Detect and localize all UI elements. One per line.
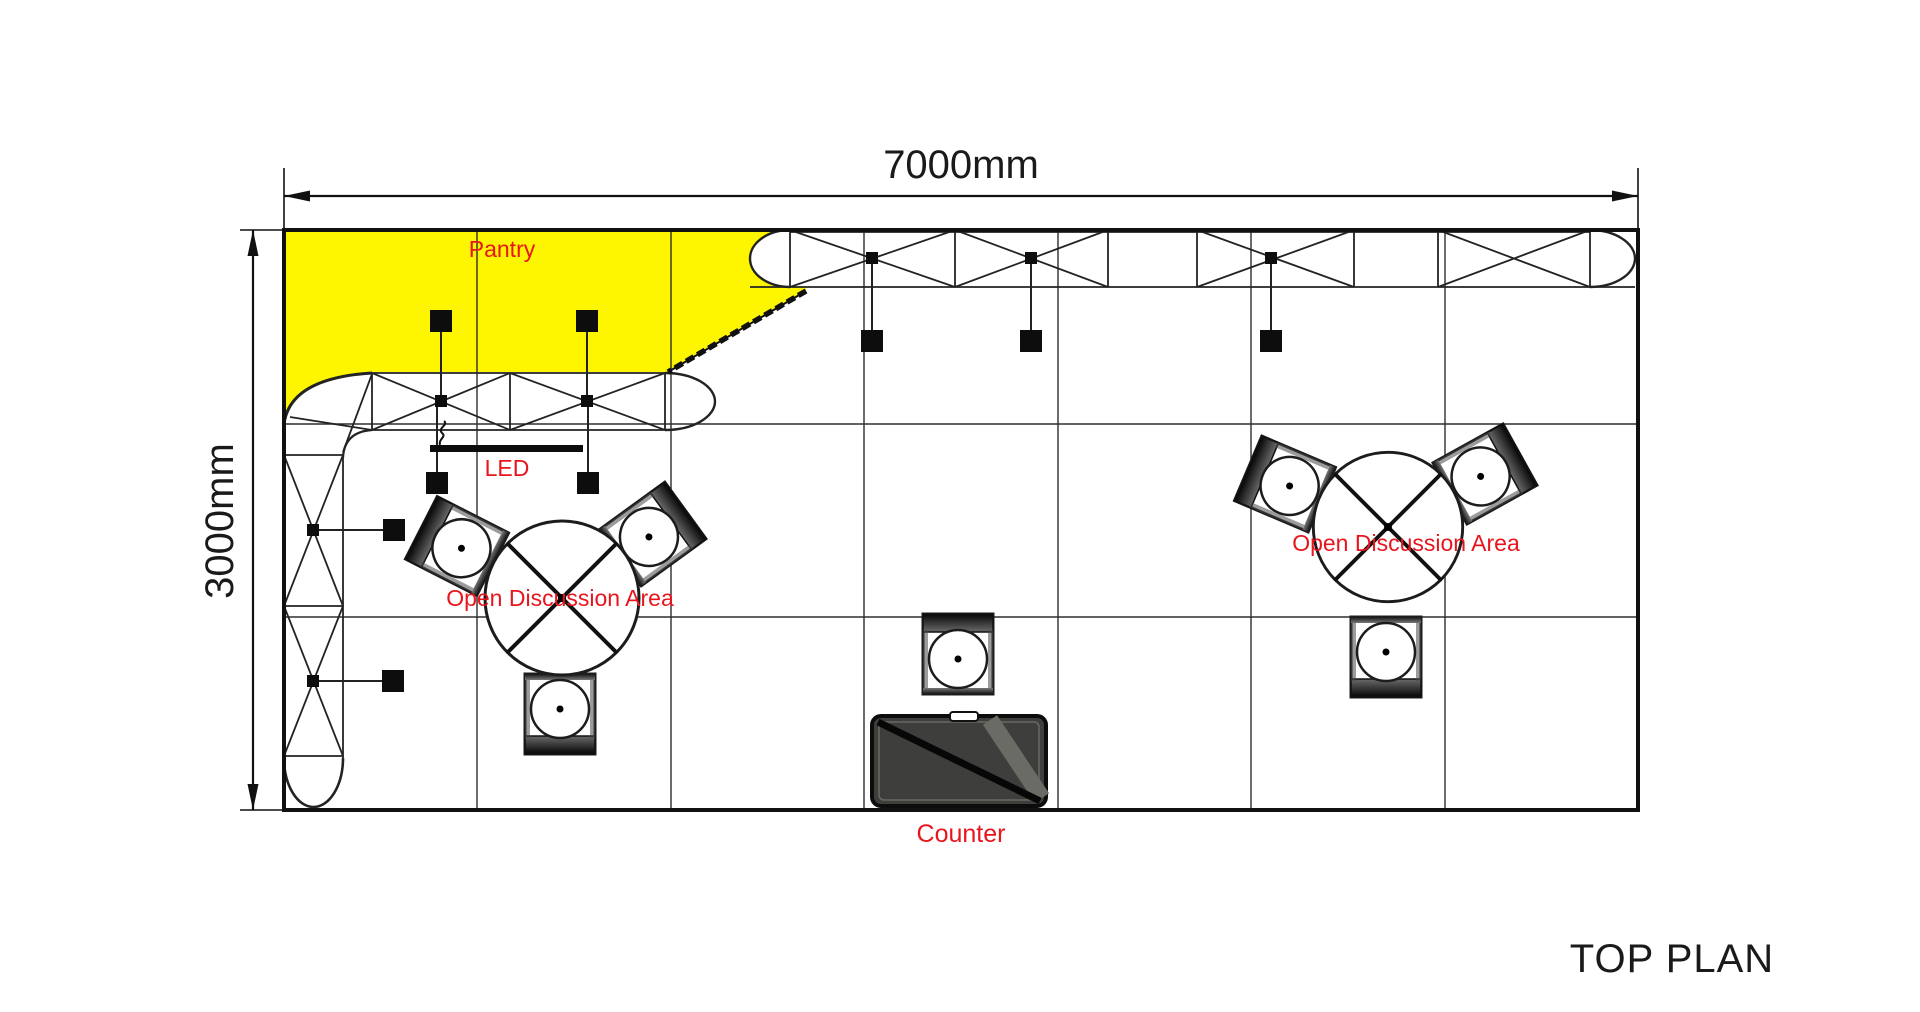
discussion-table: [1313, 452, 1462, 601]
width-dimension-label: 7000mm: [883, 143, 1039, 187]
counter-label: Counter: [917, 820, 1006, 848]
top-plan-drawing: 7000mm 3000mm Pantry LED Open Discussion…: [0, 0, 1920, 1012]
led-label: LED: [485, 455, 530, 481]
pantry-label: Pantry: [469, 236, 536, 262]
spotlight-icon: [426, 472, 448, 494]
top-plan-page: 7000mm 3000mm Pantry LED Open Discussion…: [0, 0, 1920, 1012]
truss-node: [1265, 252, 1277, 264]
counter-chair: [923, 614, 993, 694]
spotlight-icon: [861, 330, 883, 352]
height-dimension-label: 3000mm: [198, 443, 242, 599]
truss-node: [307, 524, 319, 536]
chair: [1351, 617, 1421, 697]
chair: [525, 674, 595, 754]
truss-node: [1025, 252, 1037, 264]
spotlight-icon: [1260, 330, 1282, 352]
spotlight-icon: [577, 472, 599, 494]
spotlight-icon: [383, 519, 405, 541]
spotlight-icon: [1020, 330, 1042, 352]
open-discussion-area-right-label: Open Discussion Area: [1292, 530, 1520, 556]
truss-node: [581, 395, 593, 407]
truss-node: [866, 252, 878, 264]
spotlight-icon: [576, 310, 598, 332]
counter: [872, 712, 1046, 806]
truss-node: [307, 675, 319, 687]
truss-node: [435, 395, 447, 407]
open-discussion-area-left-label: Open Discussion Area: [446, 585, 674, 611]
spotlight-icon: [382, 670, 404, 692]
drawing-title: TOP PLAN: [1570, 937, 1774, 981]
spotlight-icon: [430, 310, 452, 332]
